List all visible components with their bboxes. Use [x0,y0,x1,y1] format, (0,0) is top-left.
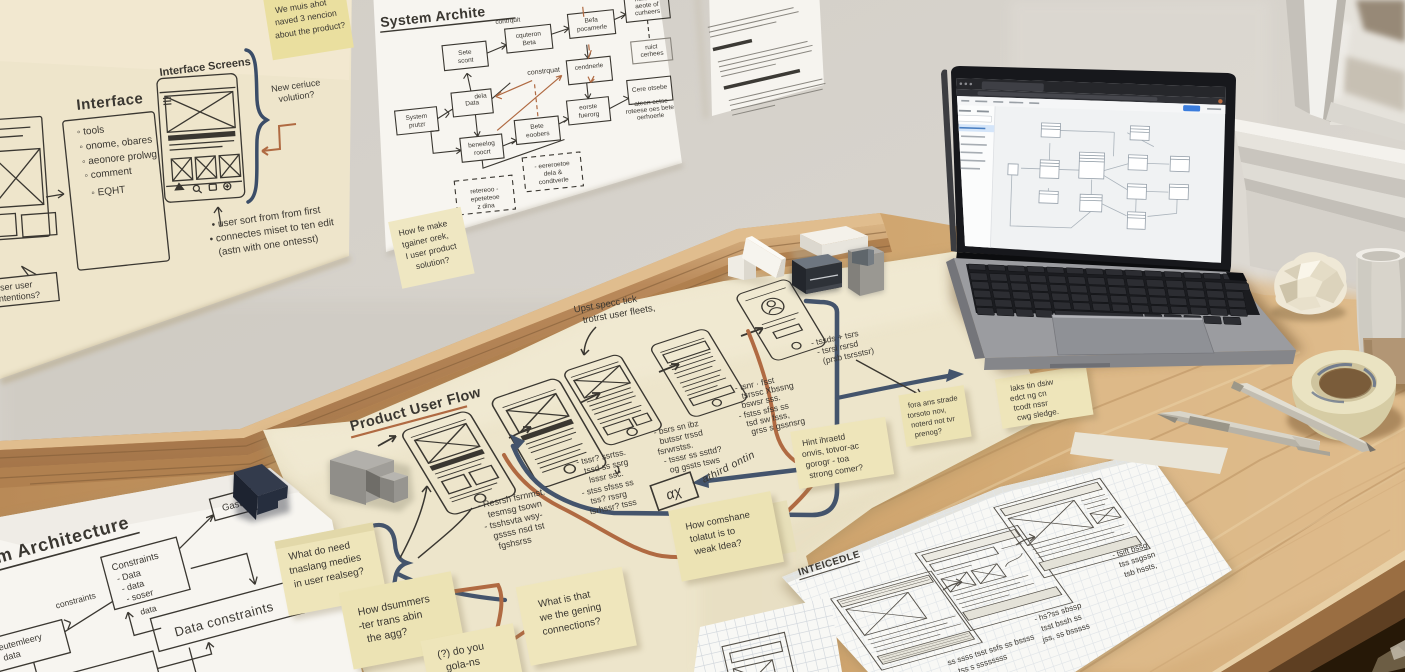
svg-text:Beta: Beta [522,39,536,47]
svg-text:Befa: Befa [584,16,598,24]
svg-text:Sete: Sete [458,49,472,57]
svg-text:Bete: Bete [530,123,544,131]
svg-text:Data: Data [465,99,480,107]
svg-text:dela: dela [474,92,487,100]
